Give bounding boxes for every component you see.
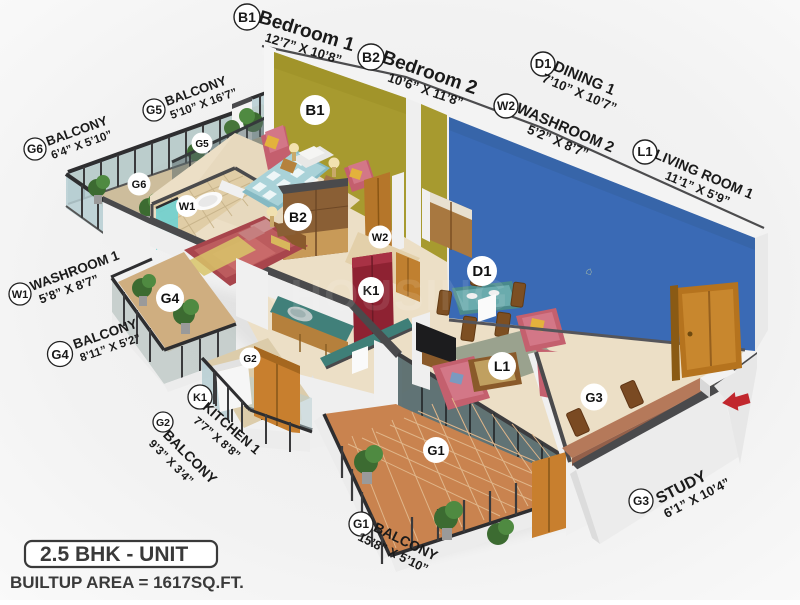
svg-text:K1: K1 [193,392,207,404]
svg-text:W2: W2 [497,99,515,113]
svg-text:G4: G4 [161,290,180,306]
svg-text:HOUSING: HOUSING [290,271,509,320]
svg-text:W1: W1 [179,201,196,213]
svg-text:G3: G3 [633,494,649,508]
svg-text:G2: G2 [243,354,257,365]
svg-text:G6: G6 [132,179,147,191]
svg-text:G1: G1 [427,443,444,458]
svg-text:G2: G2 [156,417,170,429]
svg-text:2.5: 2.5 [40,543,70,566]
svg-text:BHK - UNIT: BHK - UNIT [75,543,188,566]
svg-text:G3: G3 [585,390,602,405]
svg-text:G1: G1 [353,517,369,531]
svg-text:W2: W2 [372,232,389,244]
svg-text:G5: G5 [146,103,162,117]
svg-text:B2: B2 [362,49,380,65]
svg-text:B2: B2 [289,209,307,225]
svg-text:B1: B1 [305,102,324,119]
svg-text:L1: L1 [494,358,511,374]
svg-text:D1: D1 [535,56,552,71]
svg-text:G5: G5 [195,139,209,150]
svg-text:L1: L1 [637,144,652,159]
svg-text:B1: B1 [238,9,256,25]
svg-text:G6: G6 [27,142,43,156]
svg-text:G4: G4 [51,347,69,362]
svg-text:W1: W1 [12,289,29,301]
svg-text:BUILTUP AREA = 1617SQ.FT.: BUILTUP AREA = 1617SQ.FT. [10,573,244,592]
